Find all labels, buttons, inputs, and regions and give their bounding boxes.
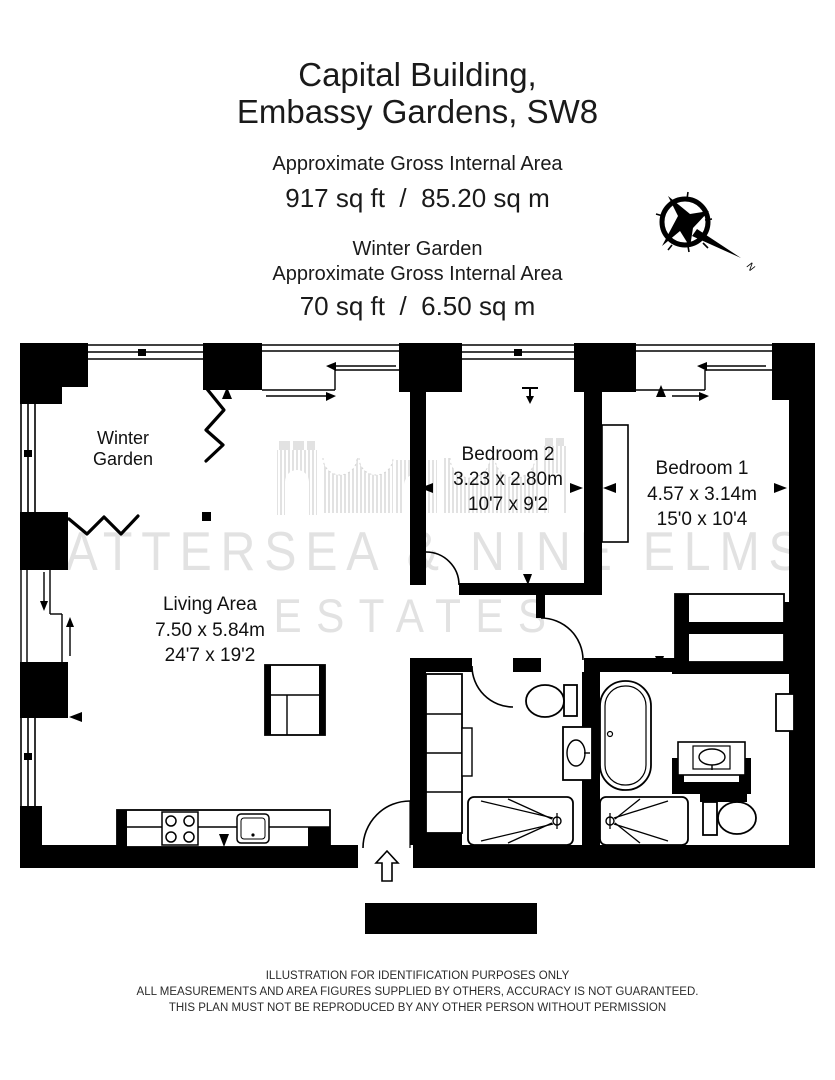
main-bathroom xyxy=(600,681,794,845)
living-area-dim-m: 7.50 x 5.84m xyxy=(155,620,265,641)
bedroom1-label: Bedroom 1 xyxy=(656,458,749,479)
disclaimer-line3: THIS PLAN MUST NOT BE REPRODUCED BY ANY … xyxy=(0,1000,835,1016)
toilet-icon xyxy=(526,685,577,717)
compass-north-label: N xyxy=(744,261,757,273)
bedroom2-dim-m: 3.23 x 2.80m xyxy=(453,469,563,490)
wardrobe xyxy=(675,594,784,662)
sink-icon xyxy=(237,814,269,843)
compass-icon: N xyxy=(656,192,757,274)
bedroom1-dim-ft: 15'0 x 10'4 xyxy=(657,509,748,530)
floorplan-page: Capital Building,Embassy Gardens, SW8 Ap… xyxy=(0,0,835,1080)
toilet-icon xyxy=(700,793,756,835)
sliding-door-top-left xyxy=(262,345,399,401)
floor-plan-svg: BATTERSEA & NINE ELMS ESTATES xyxy=(0,0,835,1080)
logo-redaction-bar xyxy=(365,903,537,934)
bedroom1-dim-m: 4.57 x 3.14m xyxy=(647,484,757,505)
bathtub-icon xyxy=(600,681,651,790)
kitchen-counter xyxy=(117,810,330,847)
shower-room-door xyxy=(472,666,513,707)
shower-tray-icon xyxy=(468,797,573,845)
winter-garden-label-1: Winter xyxy=(97,428,149,448)
entrance-door xyxy=(363,801,410,848)
disclaimer-line1: ILLUSTRATION FOR IDENTIFICATION PURPOSES… xyxy=(0,968,835,984)
shelf xyxy=(462,728,472,776)
bedroom2-dim-ft: 10'7 x 9'2 xyxy=(468,494,548,515)
bedroom2-label: Bedroom 2 xyxy=(462,444,555,465)
living-area-label: Living Area xyxy=(163,594,257,615)
hall-cupboard xyxy=(426,674,472,833)
hob-icon xyxy=(162,812,198,845)
disclaimer-line2: ALL MEASUREMENTS AND AREA FIGURES SUPPLI… xyxy=(0,984,835,1000)
living-area-dim-ft: 24'7 x 19'2 xyxy=(165,645,256,666)
vanity-basin-icon xyxy=(672,742,751,794)
watermark-line2: ESTATES xyxy=(274,589,561,642)
shower-room xyxy=(468,685,592,845)
basin-icon xyxy=(563,727,592,780)
sliding-door-top-right xyxy=(636,345,772,401)
column xyxy=(202,512,211,521)
shower-tray-icon xyxy=(600,797,688,845)
disclaimer: ILLUSTRATION FOR IDENTIFICATION PURPOSES… xyxy=(0,968,835,1016)
winter-garden-label-2: Garden xyxy=(93,449,153,469)
wall-niche xyxy=(776,694,794,731)
living-furniture xyxy=(265,665,325,735)
